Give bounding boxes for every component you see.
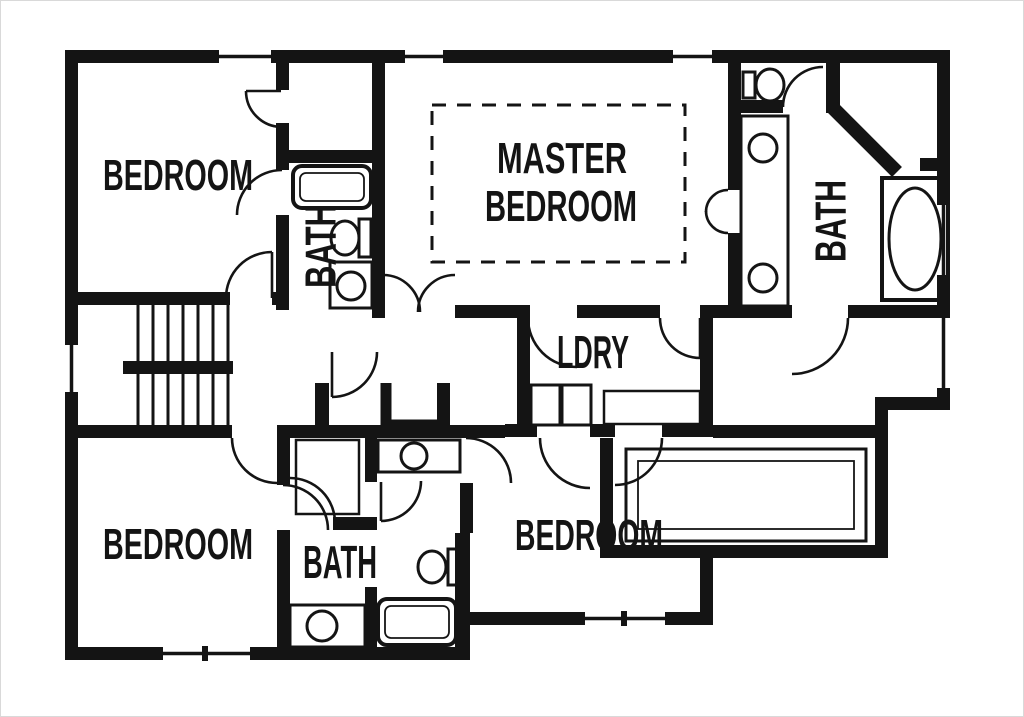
label-bedroom-top-left: BEDROOM [103, 151, 253, 200]
window-mullion-2 [621, 611, 627, 626]
floor-plan-page: BEDROOM BATH MASTER BEDROOM BATH LDRY BE… [0, 0, 1024, 717]
window-mullion-1 [202, 646, 208, 661]
label-hall-bath: BATH [303, 536, 377, 588]
label-laundry: LDRY [557, 326, 629, 378]
niche-stub-1 [315, 383, 329, 425]
label-bath-top-left: BATH [297, 204, 346, 288]
stair-treads-upper-run [138, 305, 228, 362]
label-bedroom-bottom-right: BEDROOM [515, 511, 663, 560]
label-master-line2: BEDROOM [485, 182, 637, 231]
label-master-line1: MASTER [497, 134, 627, 183]
floor-plan-drawing: BEDROOM BATH MASTER BEDROOM BATH LDRY BE… [0, 0, 1024, 717]
stair-treads-lower-run [138, 374, 228, 425]
stair-landing-rail [123, 361, 233, 374]
label-bedroom-bottom-left: BEDROOM [103, 520, 253, 569]
label-master-bath: BATH [807, 180, 856, 262]
